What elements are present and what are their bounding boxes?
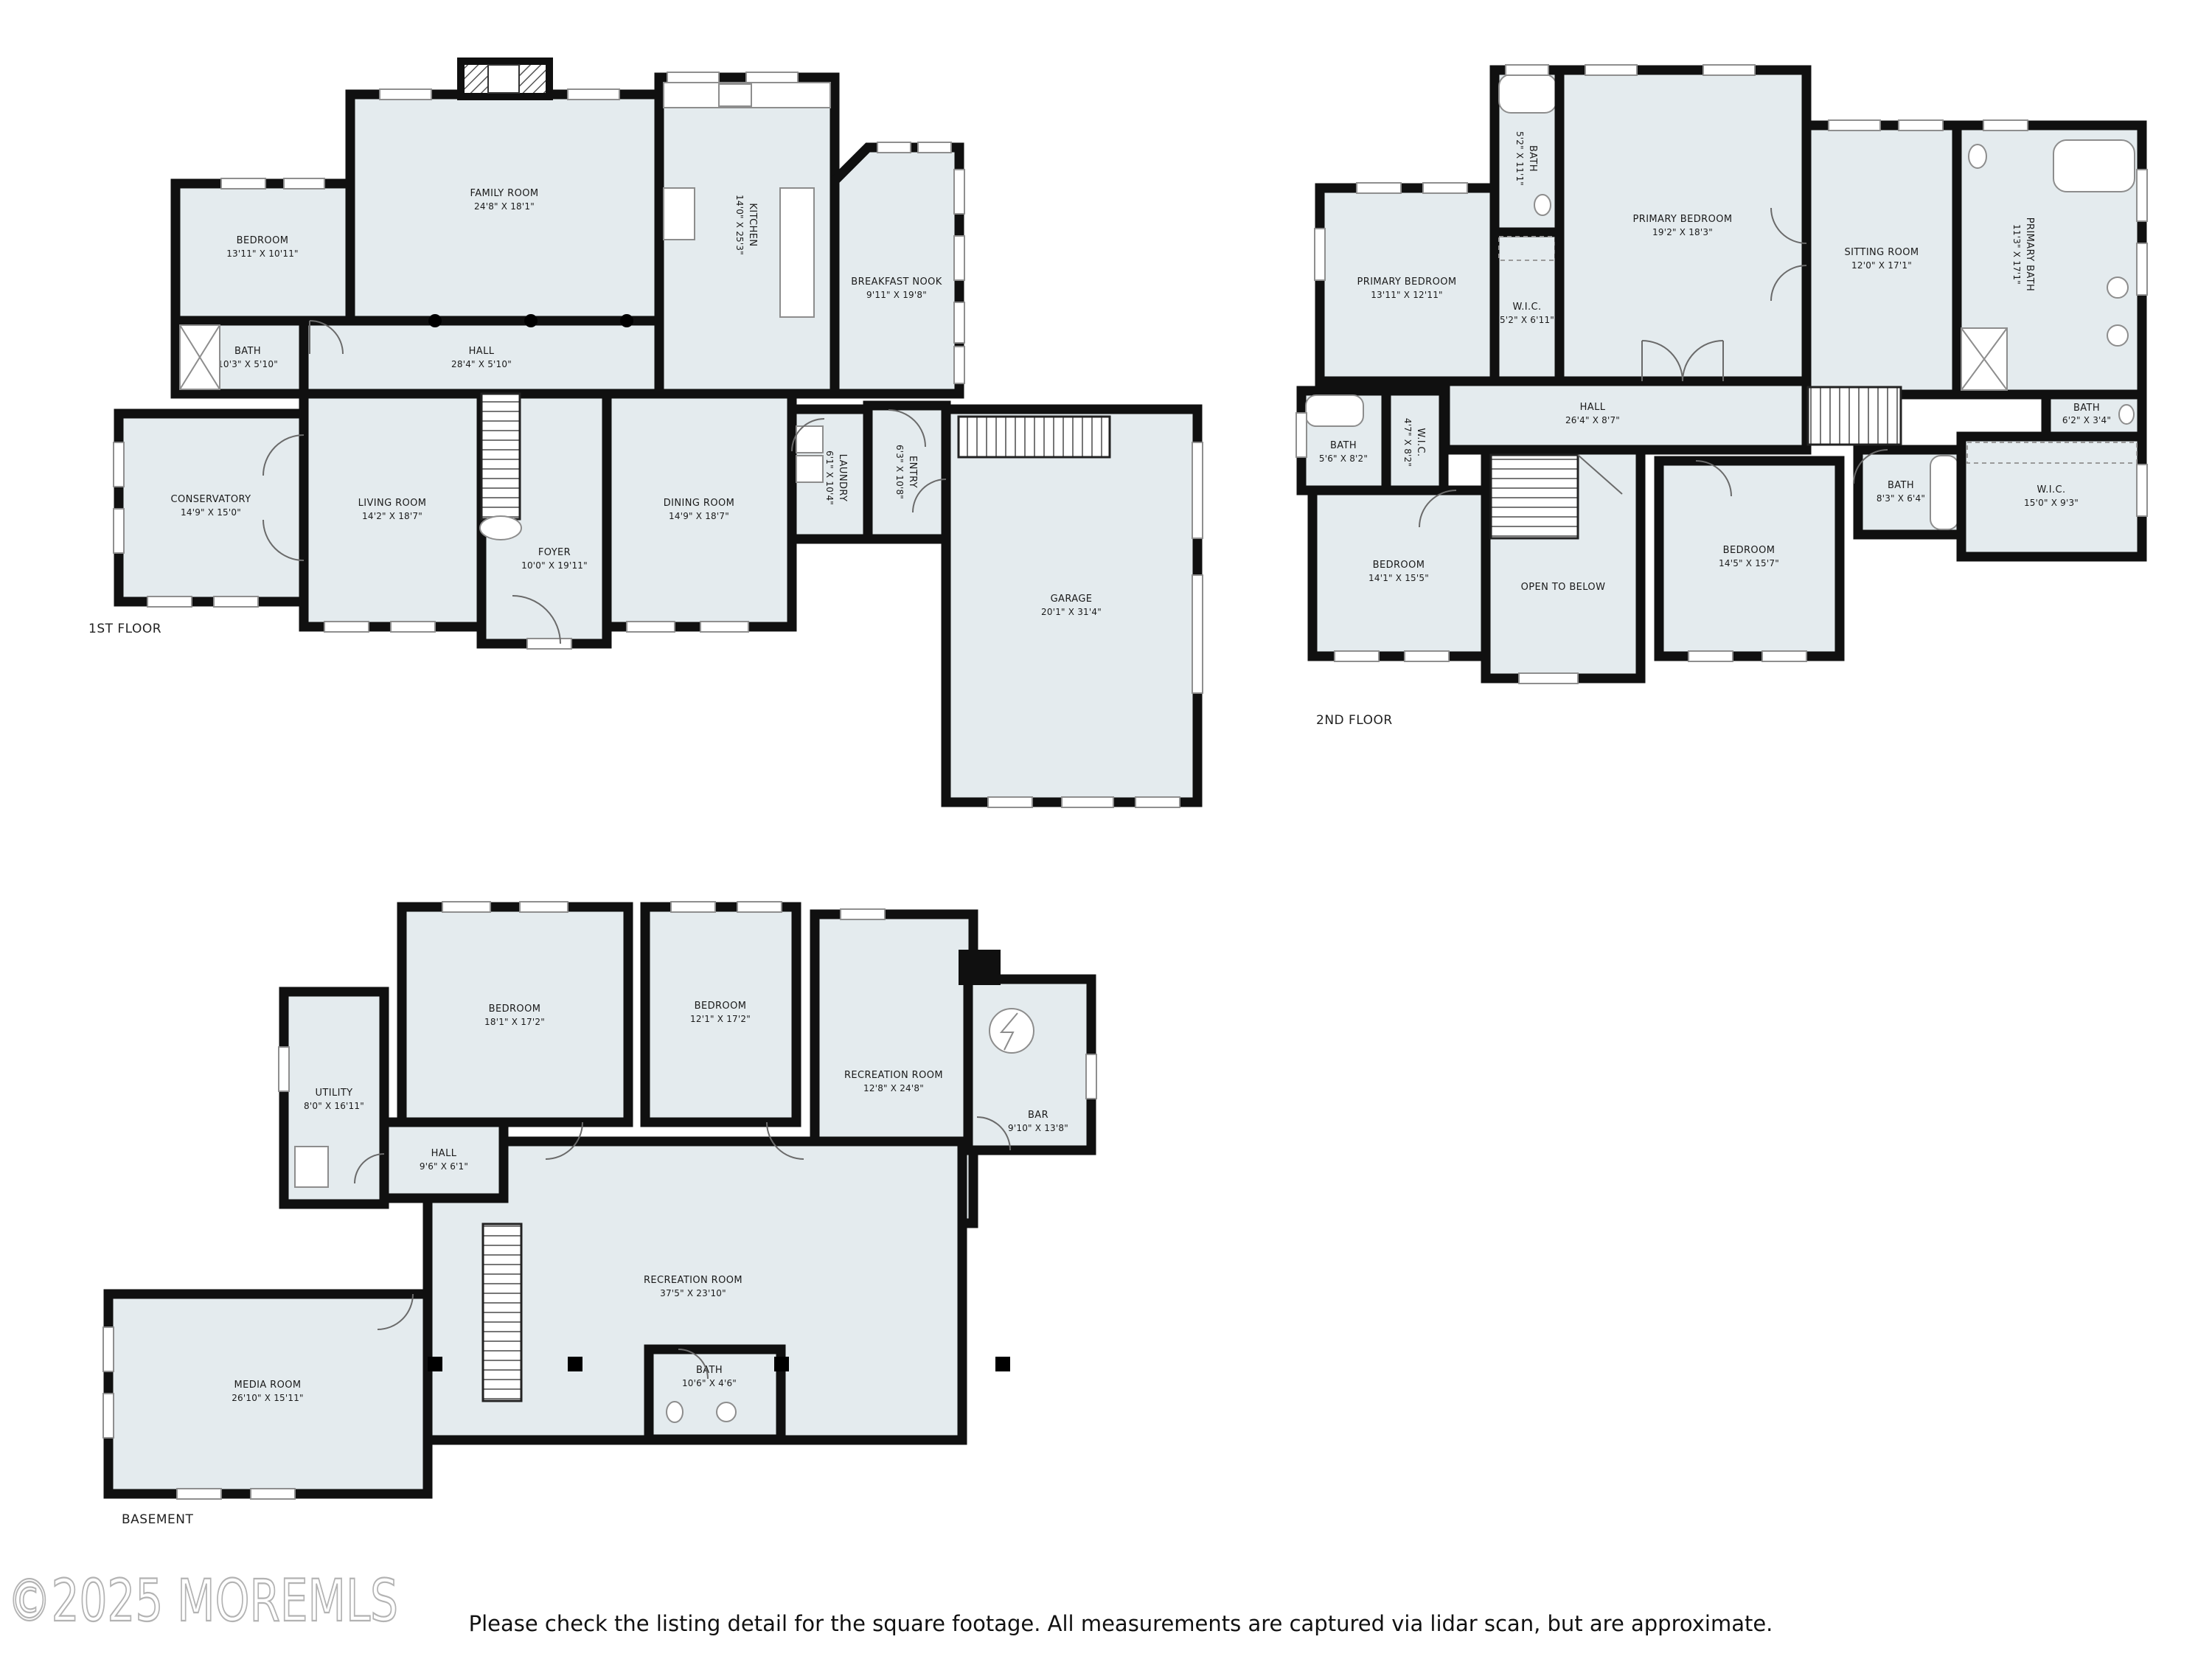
room-label: BAR [1028,1110,1048,1121]
upper-staircase [1491,455,1578,538]
room-label: PRIMARY BEDROOM [1357,276,1457,288]
room-dims: 5'2" X 11'1" [1514,131,1525,186]
electrical-panel-icon [990,1009,1034,1053]
kitchen-sink-icon [719,84,751,106]
room-dims: 14'2" X 18'7" [362,511,422,521]
fireplace-chimney-icon [461,61,549,97]
toilet-icon [667,1402,683,1422]
room-dims: 6'3" X 10'8" [894,445,905,499]
room-dims: 14'9" X 18'7" [669,511,729,521]
column-dot [524,314,538,327]
room-dims: 15'0" X 9'3" [2024,498,2079,508]
room-label: DINING ROOM [664,498,734,509]
column-dot [428,314,442,327]
room-label: LIVING ROOM [358,498,427,509]
garage-stairs [959,417,1110,457]
room-dims: 10'6" X 4'6" [682,1378,737,1388]
room-label: BATH [234,346,261,357]
room-label: UTILITY [315,1088,352,1099]
room-hall-second: HALL 26'4" X 8'7" [1445,381,1806,450]
room-label: BATH [1527,145,1538,172]
open-to-below: OPEN TO BELOW [1486,450,1641,678]
sink-icon [2107,277,2128,298]
bathtub-icon [1499,74,1557,113]
room-bath-upper: BATH 5'2" X 11'1" [1495,70,1559,232]
sink-icon [717,1402,736,1422]
floor-plan-sheet: CONSERVATORY 14'9" X 15'0" LIVING ROOM 1… [0,0,2212,1659]
bathtub-icon [1306,395,1363,426]
room-dims: 19'2" X 18'3" [1652,227,1713,237]
room-bath-left: BATH 5'6" X 8'2" [1301,391,1386,490]
room-kitchen: KITCHEN 14'0" X 25'3" [659,77,835,394]
room-label: FOYER [538,547,571,558]
room-dims: 6'1" X 10'4" [824,451,835,505]
room-label: RECREATION ROOM [844,1070,943,1081]
room-sitting-room: SITTING ROOM 12'0" X 17'1" [1806,125,1957,394]
kitchen-island [780,188,814,317]
copyright-watermark: ©2025 MOREMLS [7,1568,398,1635]
room-bedroom-4: BEDROOM 14'5" X 15'7" [1659,461,1840,656]
room-dims: 10'3" X 5'10" [218,359,278,369]
room-dims: 20'1" X 31'4" [1041,607,1102,617]
room-dims: 14'1" X 15'5" [1368,573,1429,583]
second-floor-label: 2ND FLOOR [1316,713,1393,728]
room-primary-bath: PRIMARY BATH 11'3" X 17'1" [1957,125,2142,394]
wall-block [959,950,1001,985]
sink-icon [2107,325,2128,346]
disclaimer-text: Please check the listing detail for the … [469,1611,1773,1636]
room-breakfast-nook: BREAKFAST NOOK 9'11" X 19'8" [835,147,959,394]
room-bath-basement: BATH 10'6" X 4'6" [649,1349,781,1439]
room-label: W.I.C. [1415,428,1426,456]
stair-landing [480,516,521,540]
room-bedroom-3: BEDROOM 14'1" X 15'5" [1312,490,1486,656]
room-dims: 9'11" X 19'8" [866,290,927,300]
room-label: PRIMARY BEDROOM [1633,214,1733,225]
room-bedroom-5: BEDROOM 18'1" X 17'2" [402,907,628,1122]
room-laundry: LAUNDRY 6'1" X 10'4" [792,409,868,539]
room-dims: 37'5" X 23'10" [660,1288,726,1298]
room-label: W.I.C. [2037,484,2065,495]
first-floor-label: 1ST FLOOR [88,622,161,636]
room-dims: 4'7" X 8'2" [1402,418,1413,467]
dryer-icon [796,456,823,482]
room-dining-room: DINING ROOM 14'9" X 18'7" [607,394,792,627]
room-dims: 26'4" X 8'7" [1565,415,1620,425]
room-dims: 8'3" X 6'4" [1877,493,1925,504]
column-dot [620,314,633,327]
room-dims: 13'11" X 10'11" [226,248,299,259]
room-label: BATH [1888,480,1914,491]
shower-icon [1961,328,2007,390]
column-post [568,1357,582,1371]
room-dims: 10'0" X 19'11" [521,560,588,571]
room-dims: 5'2" X 6'11" [1500,315,1554,325]
room-dims: 26'10" X 15'11" [232,1393,304,1403]
toilet-icon [2119,405,2134,424]
room-dims: 14'9" X 15'0" [181,507,241,518]
room-dims: 9'10" X 13'8" [1008,1123,1068,1133]
room-dims: 18'1" X 17'2" [484,1017,545,1027]
room-label: W.I.C. [1512,302,1541,313]
bathtub-icon [1930,456,1958,529]
room-dims: 11'3" X 17'1" [2011,224,2022,285]
room-label: HALL [431,1148,457,1159]
room-bath-small: BATH 6'2" X 3'4" [2046,394,2142,437]
room-primary-bedroom-right: PRIMARY BEDROOM 19'2" X 18'3" [1559,70,1806,381]
room-label: BATH [1330,440,1357,451]
column-post [774,1357,789,1371]
basement-label: BASEMENT [122,1512,193,1527]
room-bath-first: BATH 10'3" X 5'10" [175,321,304,394]
room-dims: 9'6" X 6'1" [420,1161,468,1172]
room-primary-bedroom-left: PRIMARY BEDROOM 13'11" X 12'11" [1320,188,1495,381]
room-wic-upper: W.I.C. 5'2" X 6'11" [1495,232,1559,381]
toilet-icon [1969,145,1986,168]
room-entry: ENTRY 6'3" X 10'8" [868,406,946,539]
room-dims: 12'0" X 17'1" [1851,260,1912,271]
room-label: PRIMARY BATH [2024,218,2035,291]
room-label: BEDROOM [1373,560,1425,571]
room-label: HALL [469,346,495,357]
room-label: MEDIA ROOM [234,1380,301,1391]
room-label: BEDROOM [489,1004,541,1015]
room-label: SITTING ROOM [1844,247,1919,258]
room-hall-first: HALL 28'4" X 5'10" [304,321,659,394]
room-conservatory: CONSERVATORY 14'9" X 15'0" [119,414,304,602]
room-label: ENTRY [907,456,918,488]
room-label: BREAKFAST NOOK [851,276,942,288]
room-utility: UTILITY 8'0" X 16'11" [284,992,384,1204]
room-dims: 28'4" X 5'10" [451,359,512,369]
room-bedroom-first: BEDROOM 13'11" X 10'11" [175,184,350,321]
room-label: FAMILY ROOM [470,188,539,199]
room-dims: 12'8" X 24'8" [863,1083,924,1093]
room-label: LAUNDRY [837,454,848,502]
room-dims: 14'5" X 15'7" [1719,558,1779,568]
room-label: BEDROOM [695,1001,747,1012]
room-label: HALL [1580,402,1606,413]
hall-stairs [1808,387,1901,445]
room-garage: GARAGE 20'1" X 31'4" [946,409,1197,802]
room-wic-left: W.I.C. 4'7" X 8'2" [1386,391,1444,490]
open-to-below-label: OPEN TO BELOW [1521,582,1606,593]
room-label: BATH [696,1365,723,1376]
room-label: BATH [2073,403,2100,414]
room-label: RECREATION ROOM [644,1275,742,1286]
room-label: BEDROOM [1723,545,1775,556]
room-dims: 5'6" X 8'2" [1319,453,1368,464]
stove-icon [664,188,695,240]
room-dims: 12'1" X 17'2" [690,1014,751,1024]
bathtub-icon [2053,140,2135,192]
utility-equipment [295,1147,328,1187]
room-family-room: FAMILY ROOM 24'8" X 18'1" [350,94,659,321]
room-bath-4: BATH 8'3" X 6'4" [1858,450,1961,535]
room-label: CONSERVATORY [171,494,251,505]
room-media-room: MEDIA ROOM 26'10" X 15'11" [108,1294,428,1494]
room-dims: 6'2" X 3'4" [2062,415,2111,425]
room-bar: BAR 9'10" X 13'8" [968,979,1091,1150]
main-staircase [481,394,520,519]
room-dims: 13'11" X 12'11" [1371,290,1443,300]
room-hall-basement: HALL 9'6" X 6'1" [384,1122,504,1198]
room-wic-4: W.I.C. 15'0" X 9'3" [1961,437,2142,557]
room-dims: 14'0" X 25'3" [734,195,745,255]
room-dims: 24'8" X 18'1" [474,201,535,212]
column-post [995,1357,1010,1371]
room-label: BEDROOM [237,235,289,246]
toilet-icon [1534,195,1551,215]
room-label: KITCHEN [747,203,758,246]
room-bedroom-6: BEDROOM 12'1" X 17'2" [645,907,796,1122]
room-living-room: LIVING ROOM 14'2" X 18'7" [304,394,481,627]
shower-icon [180,325,220,389]
room-label: GARAGE [1051,594,1093,605]
room-dims: 8'0" X 16'11" [304,1101,364,1111]
column-post [428,1357,442,1371]
basement-staircase [483,1224,521,1401]
